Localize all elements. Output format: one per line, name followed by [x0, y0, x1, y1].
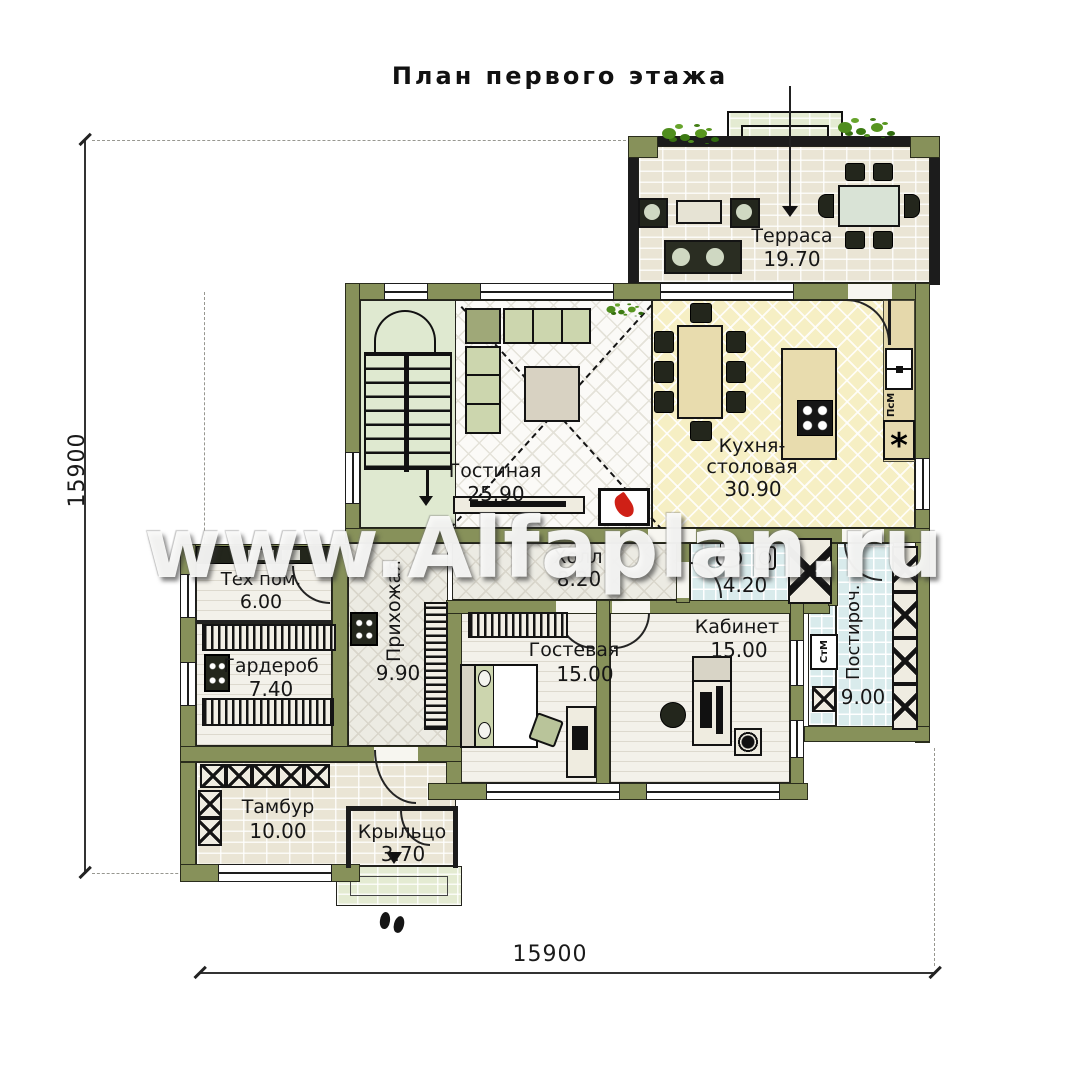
floor-plan-canvas: План первого этажа	[0, 0, 1080, 1080]
dining-table	[677, 325, 723, 419]
room-area-entry: 9.90	[368, 662, 428, 684]
dimension-bottom-label: 15900	[470, 942, 630, 968]
wardrobe-shelving	[202, 698, 334, 726]
sofa	[503, 308, 591, 344]
room-label-kitchen: Кухня-столовая	[696, 436, 808, 479]
room-label-living: Гостиная	[438, 461, 552, 482]
room-area-vestibule: 10.00	[236, 820, 320, 842]
chair	[654, 391, 674, 413]
terrace-side-table	[676, 200, 722, 224]
terrace-wall	[930, 136, 940, 285]
x-cabinet	[226, 764, 252, 788]
washing-machine: СтМ	[810, 634, 838, 670]
stove-icon	[797, 400, 833, 436]
office-pc	[700, 692, 712, 728]
porch-wall	[453, 806, 458, 868]
window	[384, 283, 428, 300]
x-cabinet	[200, 764, 226, 788]
page-title: План первого этажа	[310, 62, 810, 94]
room-label-terrace: Терраса	[742, 226, 842, 247]
door-opening	[848, 284, 892, 299]
wall	[180, 746, 462, 762]
terrace-corner-pier	[628, 136, 658, 158]
coffee-table	[524, 366, 580, 422]
washing-machine-label: СтМ	[819, 640, 830, 663]
window	[486, 783, 620, 800]
chair	[726, 361, 746, 383]
chair	[654, 331, 674, 353]
porch-platform-step	[350, 876, 448, 896]
bench-seat	[706, 248, 724, 266]
bench-seat	[672, 248, 690, 266]
window	[790, 720, 804, 758]
section-marker-arrow	[782, 206, 798, 217]
section-marker-line	[789, 86, 791, 206]
window	[218, 864, 332, 882]
extension-line	[92, 873, 188, 875]
plant-icon	[662, 128, 676, 139]
boiler-unit	[350, 612, 378, 646]
window	[790, 640, 804, 686]
extension-line	[934, 748, 936, 966]
chair	[726, 331, 746, 353]
speaker-unit	[734, 728, 762, 756]
room-label-vestibule: Тамбур	[232, 797, 324, 818]
plant-icon	[838, 122, 852, 133]
footprints-icon	[379, 911, 391, 929]
guest-laptop	[572, 726, 588, 750]
terrace-corner-pier	[910, 136, 940, 158]
fridge-symbol: *	[890, 436, 908, 456]
chair	[690, 303, 712, 323]
dimension-left-label: 15900	[65, 400, 95, 540]
dishwasher-label: ПсМ	[886, 392, 912, 418]
window	[180, 662, 196, 706]
chair	[654, 361, 674, 383]
chair	[845, 231, 865, 249]
x-cabinet	[278, 764, 304, 788]
x-cabinet	[304, 764, 330, 788]
window	[480, 283, 614, 300]
extension-line	[92, 140, 626, 142]
window	[660, 283, 794, 300]
x-cabinet	[892, 638, 918, 684]
watermark: www.Alfaplan.ru	[128, 496, 960, 600]
stairs-rail	[404, 356, 409, 472]
room-area-laundry: 9.00	[832, 686, 894, 708]
chair	[904, 194, 920, 218]
terrace-table	[838, 185, 900, 227]
x-cabinet	[198, 790, 222, 818]
porch-wall	[346, 806, 351, 868]
sink-faucet	[896, 366, 903, 373]
x-cabinet	[252, 764, 278, 788]
room-label-guest: Гостевая	[514, 640, 634, 661]
wall	[596, 600, 610, 785]
dimension-line-bottom	[200, 972, 936, 974]
armchair	[465, 308, 501, 344]
stairs-arrow-line	[426, 468, 429, 498]
office-monitor	[716, 686, 723, 734]
armchair-cushion	[644, 204, 660, 220]
room-area-office: 15.00	[704, 639, 774, 661]
bed-pillow	[478, 670, 491, 687]
desk-chair	[660, 702, 686, 728]
sofa	[465, 346, 501, 434]
room-label-wardrobe: Гардероб	[205, 656, 337, 677]
bed-pillow	[478, 722, 491, 739]
fridge-icon: *	[883, 420, 915, 460]
terrace-wall	[628, 136, 638, 285]
plant-icon	[606, 306, 615, 313]
room-label-office: Кабинет	[682, 617, 792, 638]
room-area-wardrobe: 7.40	[230, 678, 312, 700]
wardrobe-shelving	[202, 624, 336, 651]
door-leaf	[888, 299, 891, 345]
room-area-porch: 3.70	[372, 843, 434, 865]
room-label-porch: Крыльцо	[352, 822, 452, 843]
terrace-wall	[628, 136, 940, 146]
x-cabinet	[892, 684, 918, 730]
chair	[845, 163, 865, 181]
room-area-guest: 15.00	[550, 663, 620, 685]
wardrobe-shelving	[468, 612, 568, 638]
wall	[345, 283, 930, 300]
chair	[726, 391, 746, 413]
bed-headboard	[460, 664, 476, 748]
window	[646, 783, 780, 800]
armchair-cushion	[736, 204, 752, 220]
x-cabinet	[198, 818, 222, 846]
chair	[818, 194, 834, 218]
chair	[873, 231, 893, 249]
chair	[873, 163, 893, 181]
door-opening	[612, 601, 650, 613]
room-area-terrace: 19.70	[746, 248, 838, 270]
footprints-icon	[392, 915, 406, 934]
